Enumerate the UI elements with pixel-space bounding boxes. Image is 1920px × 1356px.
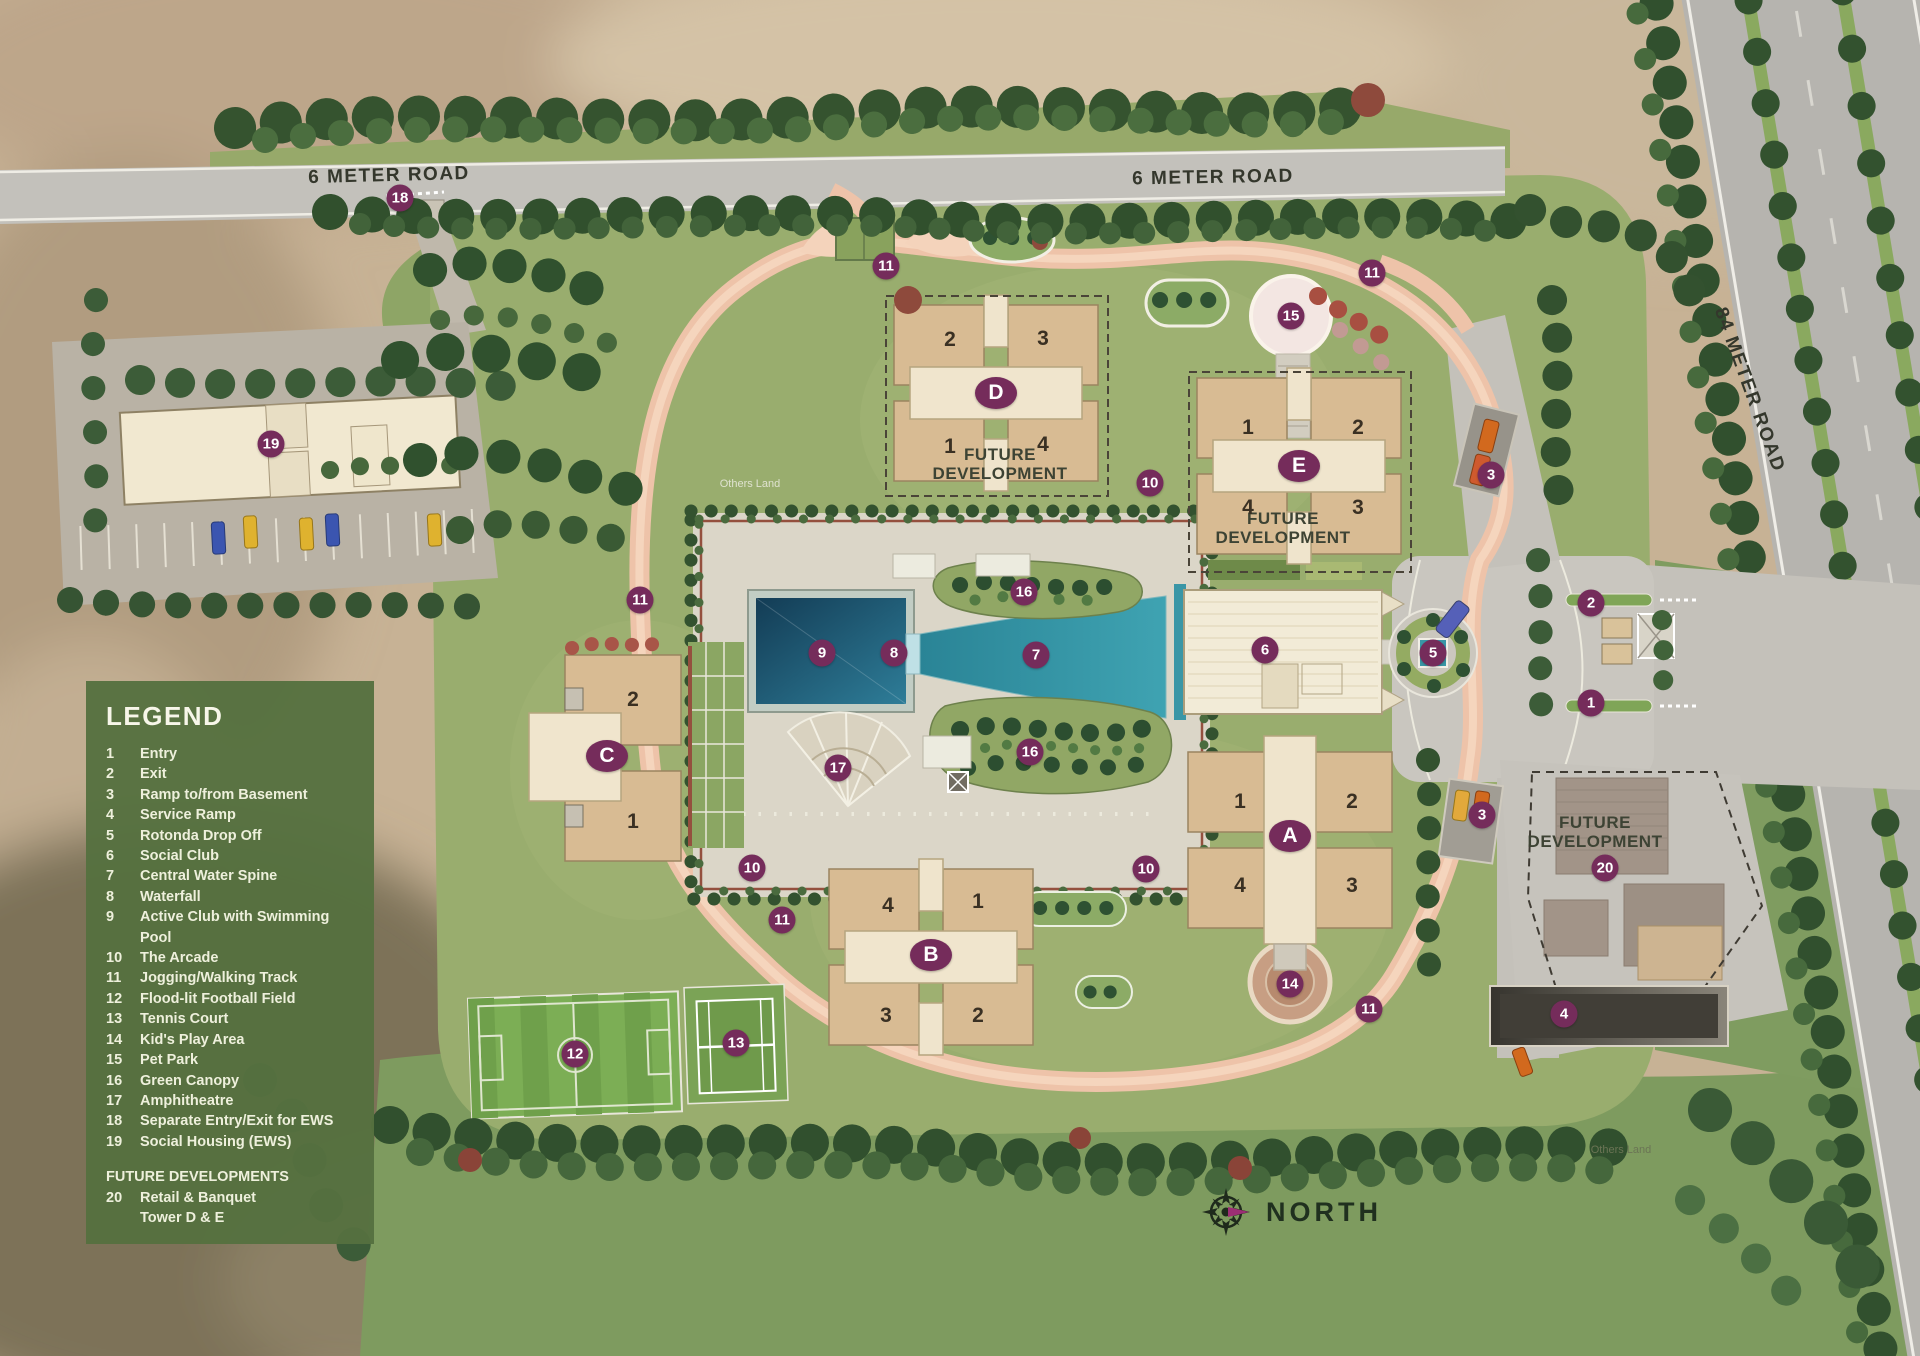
marker-12: 12 (562, 1041, 589, 1068)
unit-2: 2 (944, 328, 956, 352)
marker-11: 11 (873, 253, 900, 280)
marker-4: 4 (1551, 1001, 1578, 1028)
tower-d: D (975, 377, 1017, 409)
unit-4: 4 (1242, 496, 1254, 520)
unit-2: 2 (1352, 416, 1364, 440)
marker-14: 14 (1277, 971, 1304, 998)
marker-8: 8 (881, 640, 908, 667)
unit-2: 2 (627, 688, 639, 712)
marker-10: 10 (1137, 470, 1164, 497)
marker-10: 10 (1133, 856, 1160, 883)
tower-b: B (910, 939, 952, 971)
unit-3: 3 (1346, 874, 1358, 898)
unit-2: 2 (972, 1004, 984, 1028)
marker-18: 18 (387, 185, 414, 212)
tower-c: C (586, 740, 628, 772)
unit-3: 3 (1352, 496, 1364, 520)
marker-11: 11 (1356, 996, 1383, 1023)
marker-1: 1 (1578, 690, 1605, 717)
marker-19: 19 (258, 431, 285, 458)
tower-a: A (1269, 820, 1311, 852)
marker-9: 9 (809, 640, 836, 667)
map-marker-layer: DECAB23141243211243413218111511191031121… (0, 0, 1920, 1356)
marker-11: 11 (1359, 260, 1386, 287)
north-indicator: NORTH (1200, 1186, 1382, 1238)
marker-15: 15 (1278, 303, 1305, 330)
unit-4: 4 (882, 894, 894, 918)
marker-3: 3 (1478, 462, 1505, 489)
unit-1: 1 (1234, 790, 1246, 814)
marker-16: 16 (1017, 739, 1044, 766)
marker-20: 20 (1592, 855, 1619, 882)
unit-3: 3 (1037, 327, 1049, 351)
marker-7: 7 (1023, 642, 1050, 669)
unit-2: 2 (1346, 790, 1358, 814)
compass-rose-icon (1200, 1186, 1252, 1238)
unit-4: 4 (1234, 874, 1246, 898)
marker-5: 5 (1420, 640, 1447, 667)
marker-11: 11 (769, 907, 796, 934)
marker-2: 2 (1578, 590, 1605, 617)
unit-1: 1 (1242, 416, 1254, 440)
site-master-plan: LEGEND 1Entry2Exit3Ramp to/from Basement… (0, 0, 1920, 1356)
unit-1: 1 (627, 810, 639, 834)
marker-17: 17 (825, 755, 852, 782)
marker-3: 3 (1469, 802, 1496, 829)
marker-6: 6 (1252, 637, 1279, 664)
marker-13: 13 (723, 1030, 750, 1057)
unit-1: 1 (944, 435, 956, 459)
unit-4: 4 (1037, 433, 1049, 457)
marker-10: 10 (739, 855, 766, 882)
north-label: NORTH (1266, 1197, 1382, 1228)
unit-3: 3 (880, 1004, 892, 1028)
unit-1: 1 (972, 890, 984, 914)
tower-e: E (1278, 450, 1320, 482)
marker-16: 16 (1011, 579, 1038, 606)
marker-11: 11 (627, 587, 654, 614)
